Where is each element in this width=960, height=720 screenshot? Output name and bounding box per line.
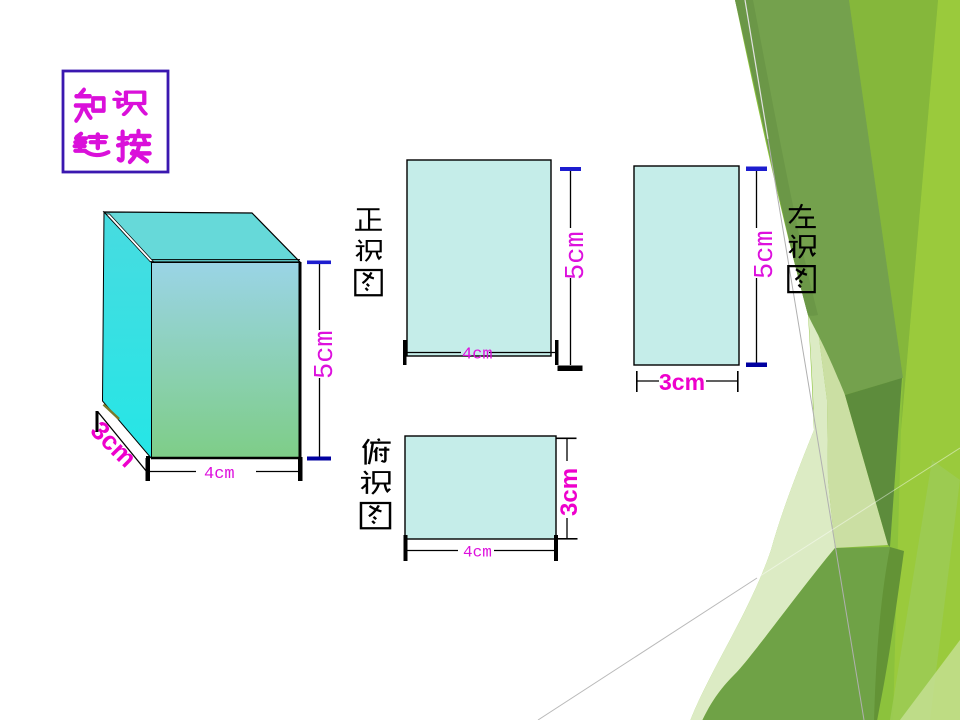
svg-text:3cm: 3cm <box>659 369 705 395</box>
svg-text:4cm: 4cm <box>204 465 235 484</box>
svg-text:5cm: 5cm <box>562 231 592 280</box>
svg-text:4cm: 4cm <box>463 544 492 562</box>
svg-text:4cm: 4cm <box>462 346 493 365</box>
svg-text:5cm: 5cm <box>751 230 781 279</box>
svg-text:5cm: 5cm <box>311 330 341 379</box>
svg-text:3cm: 3cm <box>556 468 583 516</box>
